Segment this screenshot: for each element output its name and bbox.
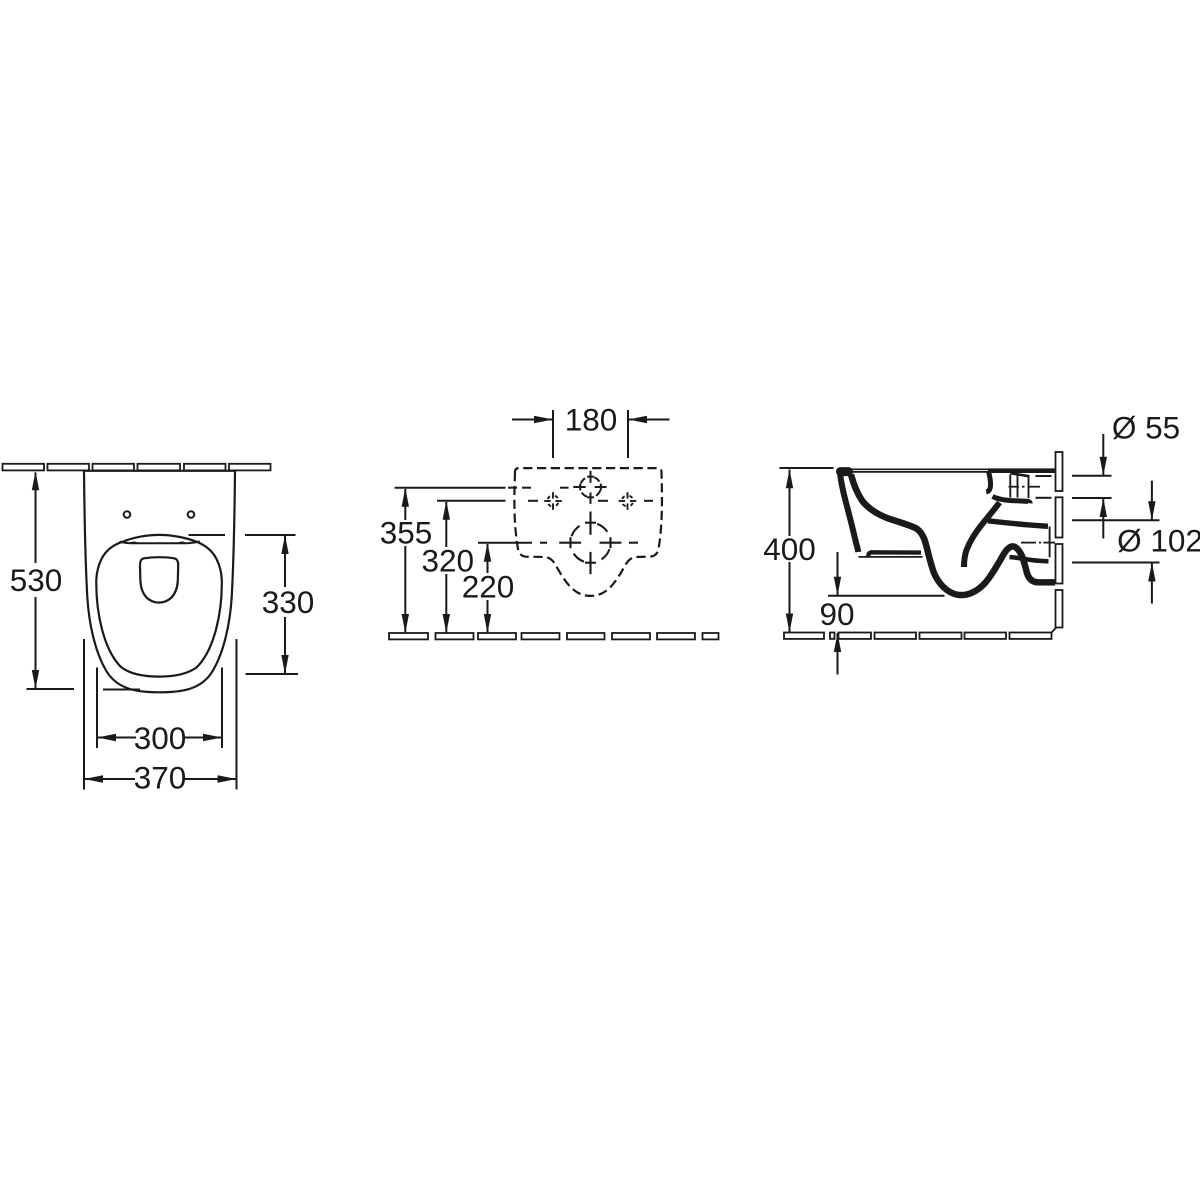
svg-text:220: 220 bbox=[462, 569, 515, 605]
svg-text:180: 180 bbox=[565, 402, 618, 438]
svg-text:530: 530 bbox=[10, 562, 63, 598]
svg-text:90: 90 bbox=[819, 596, 854, 632]
svg-text:400: 400 bbox=[763, 531, 816, 567]
svg-text:370: 370 bbox=[134, 760, 187, 796]
svg-text:300: 300 bbox=[134, 720, 187, 756]
svg-text:Ø 102: Ø 102 bbox=[1117, 522, 1200, 558]
svg-text:Ø 55: Ø 55 bbox=[1112, 410, 1180, 446]
svg-text:330: 330 bbox=[262, 584, 315, 620]
